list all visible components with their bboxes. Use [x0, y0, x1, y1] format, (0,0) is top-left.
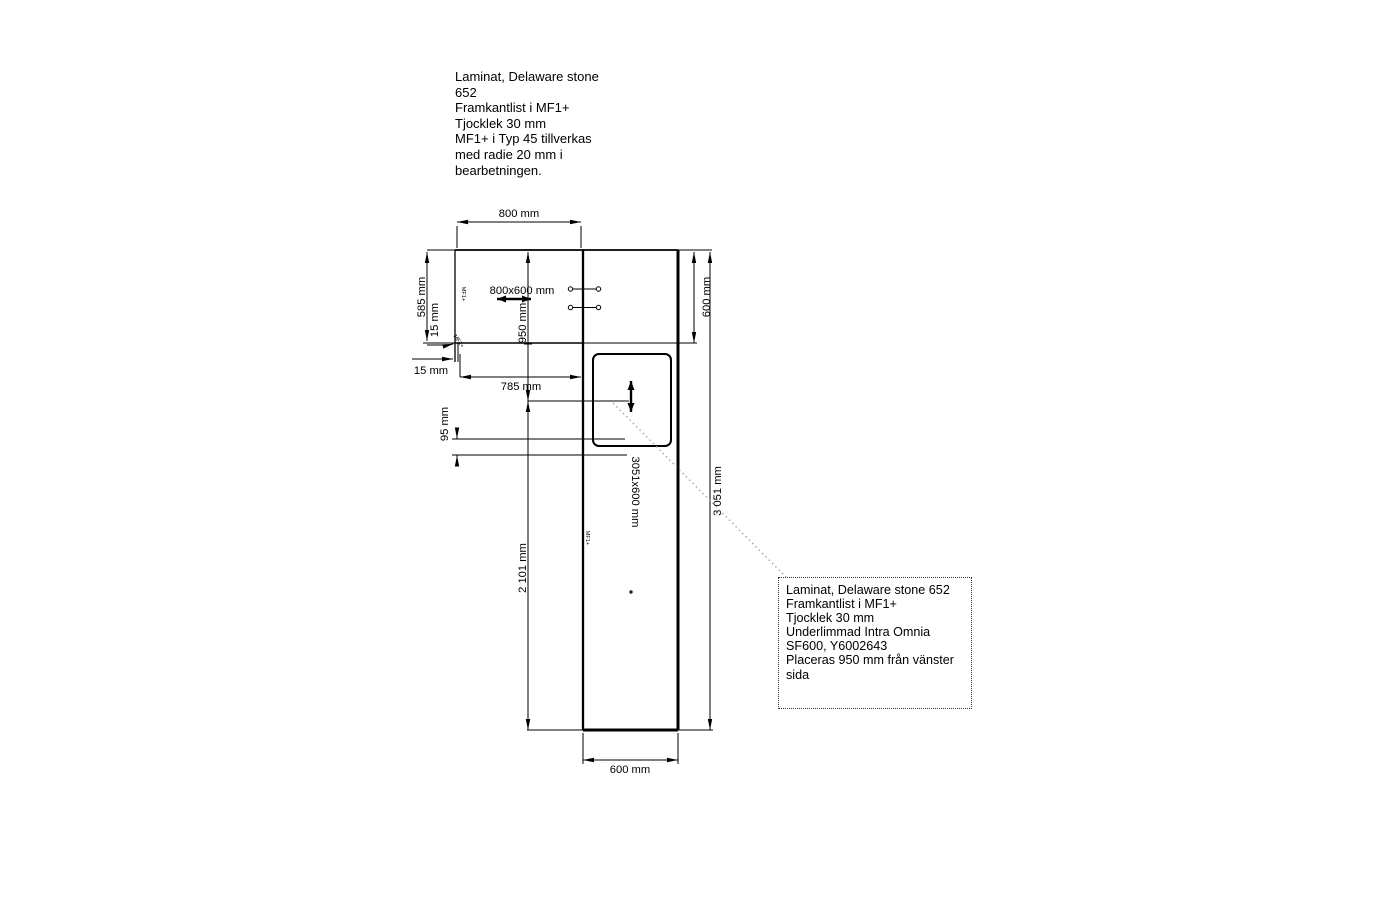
dim-sink-position-label: 950 mm	[517, 303, 529, 343]
faucet-hole-mark	[629, 590, 632, 593]
dim-lower-length-label: 2 101 mm	[517, 543, 529, 593]
dim-edge-left-label: 15 mm	[429, 303, 441, 337]
joint-bolt	[568, 287, 600, 291]
edge-band-label-side: MF1+	[584, 531, 590, 545]
dim-edge-bottom-label: 15 mm	[414, 365, 448, 377]
piece1-label-group: 800x600 mm	[490, 285, 555, 299]
joint-bolt	[568, 305, 600, 309]
dim-left-height-label: 585 mm	[416, 277, 428, 317]
dim-right-depth-label: 600 mm	[701, 277, 713, 317]
worktop-outline	[423, 250, 713, 730]
dim-bottom-width-label: 600 mm	[610, 764, 650, 776]
piece2-size-label: 3051x600 mm	[629, 457, 641, 528]
dim-sink-gap-label: 95 mm	[439, 407, 451, 441]
technical-drawing-page: Laminat, Delaware stone 652 Framkantlist…	[0, 0, 1379, 913]
dim-total-length-label: 3 051 mm	[712, 466, 724, 516]
dimensions	[412, 222, 710, 764]
worktop-drawing: 800x600 mm 3051x600 mm MF1+ MF1+ MF1+	[0, 0, 1379, 913]
dim-top-width-label: 800 mm	[499, 208, 539, 220]
dim-front-width-label: 785 mm	[501, 381, 541, 393]
edge-band-label-front: MF1+	[460, 287, 466, 301]
piece1-size-label: 800x600 mm	[490, 285, 555, 297]
joint-bolts	[568, 287, 600, 310]
